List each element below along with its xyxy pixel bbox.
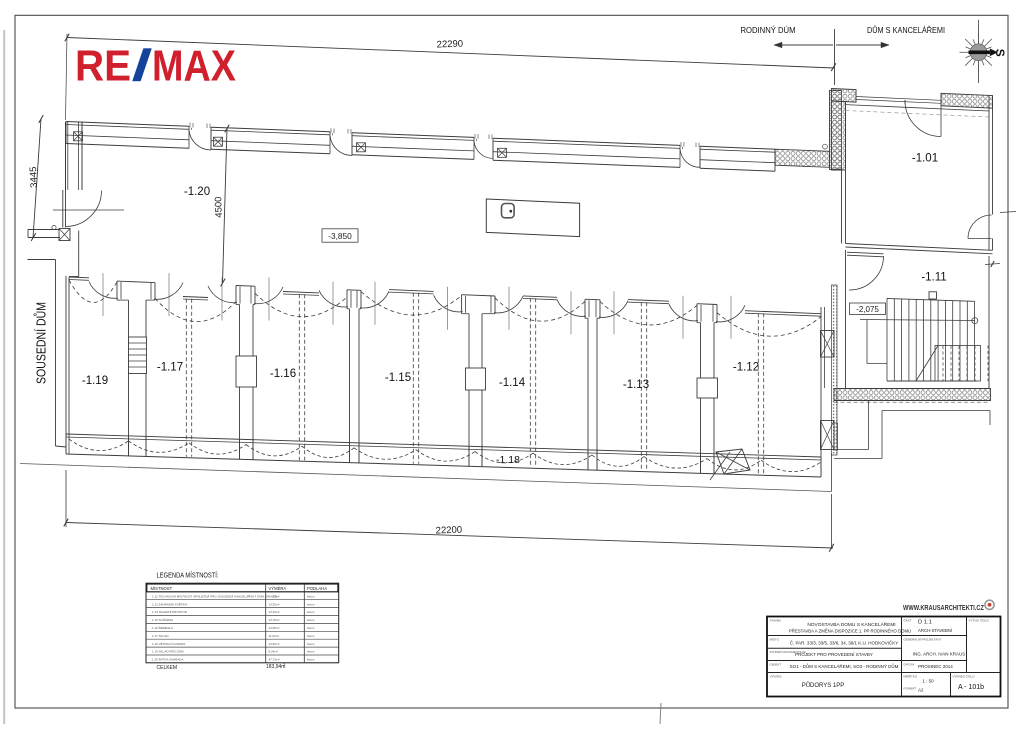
svg-text:47,73m²: 47,73m² — [269, 658, 280, 662]
svg-text:DATUM: DATUM — [904, 662, 915, 666]
svg-text:FORMÁT: FORMÁT — [904, 687, 917, 691]
svg-text:VÝMĚRA: VÝMĚRA — [269, 586, 287, 591]
svg-text:RODINNÝ DÚM: RODINNÝ DÚM — [741, 26, 796, 35]
svg-text:PROJEKT PRO PROVEDENÍ STAVBY: PROJEKT PRO PROVEDENÍ STAVBY — [795, 651, 873, 657]
svg-text:13,55m²: 13,55m² — [269, 602, 280, 606]
svg-text:-1.01: -1.01 — [912, 153, 938, 165]
svg-text:-1.11: -1.11 — [921, 272, 946, 284]
svg-text:-1.16: -1.16 — [270, 368, 296, 380]
svg-text:CELKEM: CELKEM — [157, 665, 178, 671]
svg-text:1.14 SKLEPNÍ PROSTOR: 1.14 SKLEPNÍ PROSTOR — [152, 610, 188, 614]
svg-text:VÝTISK ČÍSLO: VÝTISK ČÍSLO — [969, 618, 990, 623]
svg-text:-3,850: -3,850 — [328, 231, 352, 241]
svg-text:11,91m²: 11,91m² — [269, 634, 280, 638]
svg-text:VÝKRES ČÍSLO: VÝKRES ČÍSLO — [953, 674, 976, 679]
svg-text:MĚŘÍTKO: MĚŘÍTKO — [904, 674, 918, 679]
svg-text:MÍSTO: MÍSTO — [770, 638, 780, 642]
svg-text:22290: 22290 — [436, 38, 463, 50]
svg-text:beton: beton — [307, 610, 315, 614]
svg-text:LEGENDA MÍSTNOSTÍ:: LEGENDA MÍSTNOSTÍ: — [157, 571, 219, 580]
svg-text:-1.20: -1.20 — [184, 186, 210, 198]
svg-text:beton: beton — [307, 642, 315, 646]
svg-text:beton: beton — [307, 626, 315, 630]
svg-text:13,05m²: 13,05m² — [269, 626, 280, 630]
svg-text:SO1 - DŮM S KANCELÁŘEMI, SO3 -: SO1 - DŮM S KANCELÁŘEMI, SO3 - RODINNÝ D… — [790, 662, 899, 669]
svg-text:STAVBA: STAVBA — [770, 619, 781, 623]
svg-text:beton: beton — [307, 634, 315, 638]
svg-text:RE: RE — [75, 42, 131, 91]
svg-text:4500: 4500 — [213, 196, 225, 218]
svg-text:MAX: MAX — [152, 42, 236, 91]
svg-text:GENERÁLNÍ PROJEKTANT: GENERÁLNÍ PROJEKTANT — [904, 638, 942, 642]
svg-text:ARCH-STAVEBNÍ: ARCH-STAVEBNÍ — [918, 628, 953, 633]
svg-text:PŘESTAVBA A ZMĚNA DISPOZICE 1.: PŘESTAVBA A ZMĚNA DISPOZICE 1. PP RODINN… — [789, 629, 911, 634]
svg-text:beton: beton — [307, 594, 315, 598]
svg-text:1.13 ZAHRADNÍ KVĚTINY: 1.13 ZAHRADNÍ KVĚTINY — [152, 601, 188, 606]
svg-text:-1.19: -1.19 — [82, 375, 108, 387]
svg-text:1.12 TECHNICKÁ MÍSTNOST SPOLEČ: 1.12 TECHNICKÁ MÍSTNOST SPOLEČNÁ PRO SOU… — [152, 593, 277, 598]
svg-text:PŮDORYS 1PP: PŮDORYS 1PP — [802, 682, 845, 689]
svg-text:S: S — [993, 49, 1007, 57]
svg-text:PROSINEC 2014: PROSINEC 2014 — [918, 664, 953, 669]
svg-text:SOUSEDNÍ DŮM: SOUSEDNÍ DŮM — [34, 302, 49, 384]
svg-text:PODLAHA: PODLAHA — [307, 586, 327, 591]
svg-text:13,82m²: 13,82m² — [269, 642, 280, 646]
svg-text:DŮM S KANCELÁŘEMI: DŮM S KANCELÁŘEMI — [867, 26, 945, 35]
svg-text:1.16 ŘEMESLA: 1.16 ŘEMESLA — [152, 625, 173, 630]
svg-text:D 1.1: D 1.1 — [918, 620, 932, 626]
svg-text:-1.18: -1.18 — [496, 454, 520, 466]
svg-text:3445: 3445 — [28, 166, 40, 188]
svg-text:14,63m²: 14,63m² — [269, 594, 280, 598]
svg-text:1 : 50: 1 : 50 — [922, 679, 934, 684]
svg-text:1.15 SUŠÁRNA: 1.15 SUŠÁRNA — [152, 617, 173, 622]
svg-text:13,46m²: 13,46m² — [269, 610, 280, 614]
svg-text:-1.13: -1.13 — [623, 379, 649, 391]
svg-text:ING. ARCH. IVAN KRAUS: ING. ARCH. IVAN KRAUS — [913, 652, 965, 657]
svg-text:VÝKRES: VÝKRES — [770, 675, 782, 679]
svg-text:-1.17: -1.17 — [157, 362, 183, 374]
svg-text:A2: A2 — [918, 688, 924, 693]
svg-text:-1.15: -1.15 — [385, 372, 411, 384]
svg-text:22200: 22200 — [436, 525, 463, 537]
svg-text:1.19 SKLAD PRO DŮM: 1.19 SKLAD PRO DŮM — [152, 649, 184, 654]
svg-text:1.20 ŠATNA ZAHRADA: 1.20 ŠATNA ZAHRADA — [152, 657, 183, 662]
svg-text:WWW.KRAUSARCHITEKTI.CZ: WWW.KRAUSARCHITEKTI.CZ — [903, 603, 984, 612]
svg-text:Č. PAR. 33/3, 33/5, 33/6, 34,: Č. PAR. 33/3, 33/5, 33/6, 34, 36/1 K.U. … — [790, 640, 898, 646]
svg-text:13,78m²: 13,78m² — [269, 618, 280, 622]
svg-text:beton: beton — [307, 650, 315, 654]
svg-text:MÍSTNOST: MÍSTNOST — [151, 586, 173, 591]
svg-text:2: 2 — [284, 663, 286, 667]
svg-text:OBJEKT: OBJEKT — [770, 663, 782, 667]
svg-text:A - 101b: A - 101b — [958, 684, 984, 691]
svg-text:8,24m²: 8,24m² — [269, 650, 278, 654]
svg-text:ČÁST: ČÁST — [904, 618, 912, 623]
svg-text:beton: beton — [307, 658, 315, 662]
svg-text:beton: beton — [307, 602, 315, 606]
svg-text:-1.12: -1.12 — [733, 362, 759, 374]
svg-text:1.17 SKLAD: 1.17 SKLAD — [152, 634, 169, 638]
svg-text:-1.14: -1.14 — [499, 377, 526, 389]
svg-text:1.18 VĚTRACÍ CHODBA: 1.18 VĚTRACÍ CHODBA — [152, 641, 185, 646]
svg-text:beton: beton — [307, 618, 315, 622]
svg-text:-2,075: -2,075 — [856, 305, 879, 314]
